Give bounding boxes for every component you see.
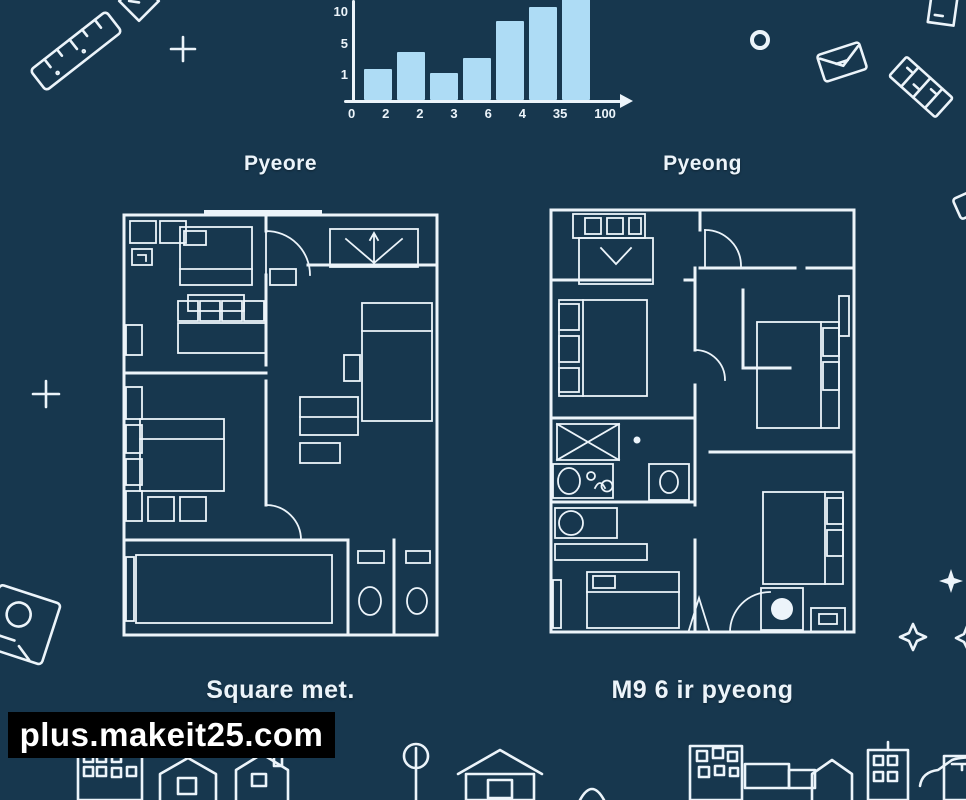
watermark: plus.makeit25.com	[8, 712, 335, 758]
chart-bar	[562, 0, 590, 100]
chart-bar	[529, 7, 557, 100]
circle-icon	[749, 29, 771, 51]
tick-label: 6	[485, 106, 492, 121]
right-floor-plan	[545, 200, 860, 640]
frame-icon	[926, 0, 961, 28]
chart-y-tick-labels: 1051	[330, 4, 348, 82]
chart-bars	[364, 0, 600, 100]
tick-label: 100	[594, 106, 616, 121]
tick-label: 2	[382, 106, 389, 121]
bar-chart: 1051 02236435100	[330, 0, 650, 130]
tick-label: 5	[341, 36, 348, 51]
house-icon	[236, 754, 288, 800]
chart-bar	[364, 69, 392, 100]
tick-label: 4	[519, 106, 526, 121]
plus-icon-2	[32, 380, 60, 408]
arch-icon	[580, 789, 604, 800]
badge-icon	[950, 188, 966, 222]
tilted-ruler-icon	[886, 54, 955, 120]
right-plan-title: Pyeong	[545, 152, 860, 176]
tick-label: 3	[450, 106, 457, 121]
right-plan-caption: M9 6 ir pyeong	[545, 676, 860, 705]
chart-x-axis-arrow-icon	[620, 94, 633, 108]
tick-label: 1	[341, 67, 348, 82]
roof-icon	[115, 0, 163, 25]
house-icon	[458, 750, 542, 800]
house-card-icon	[0, 581, 69, 680]
chart-y-axis	[352, 0, 355, 103]
chart-x-tick-labels: 02236435100	[348, 106, 616, 121]
left-plan-title: Pyeore	[118, 152, 443, 176]
tick-label: 0	[348, 106, 355, 121]
building-icon	[868, 742, 908, 800]
ruler-icon	[27, 8, 124, 93]
left-floor-plan-drawing	[118, 205, 443, 640]
left-floor-plan	[118, 205, 443, 640]
chart-bar	[430, 73, 458, 100]
left-plan-caption: Square met.	[118, 676, 443, 705]
chart-x-axis	[344, 100, 622, 103]
building-icon	[690, 746, 742, 800]
envelope-icon	[814, 39, 870, 84]
house-icon	[160, 758, 216, 800]
tick-label: 2	[416, 106, 423, 121]
streetlight-icon	[404, 744, 428, 800]
house-icon	[812, 760, 852, 800]
chart-bar	[463, 58, 491, 100]
truck-icon	[745, 764, 815, 788]
sparkle-icon	[938, 568, 964, 594]
chart-bar	[496, 21, 524, 100]
plus-icon	[170, 36, 196, 62]
watermark-text: plus.makeit25.com	[20, 716, 324, 754]
chart-bar	[397, 52, 425, 100]
diamond-sparkle-icon	[898, 622, 928, 652]
edge-sparkle-icon	[956, 622, 966, 650]
blueprint-poster: { "canvas": { "background": "#17374e", "…	[0, 0, 966, 780]
tick-label: 10	[334, 4, 348, 19]
tick-label: 35	[553, 106, 567, 121]
right-floor-plan-drawing	[545, 200, 860, 640]
